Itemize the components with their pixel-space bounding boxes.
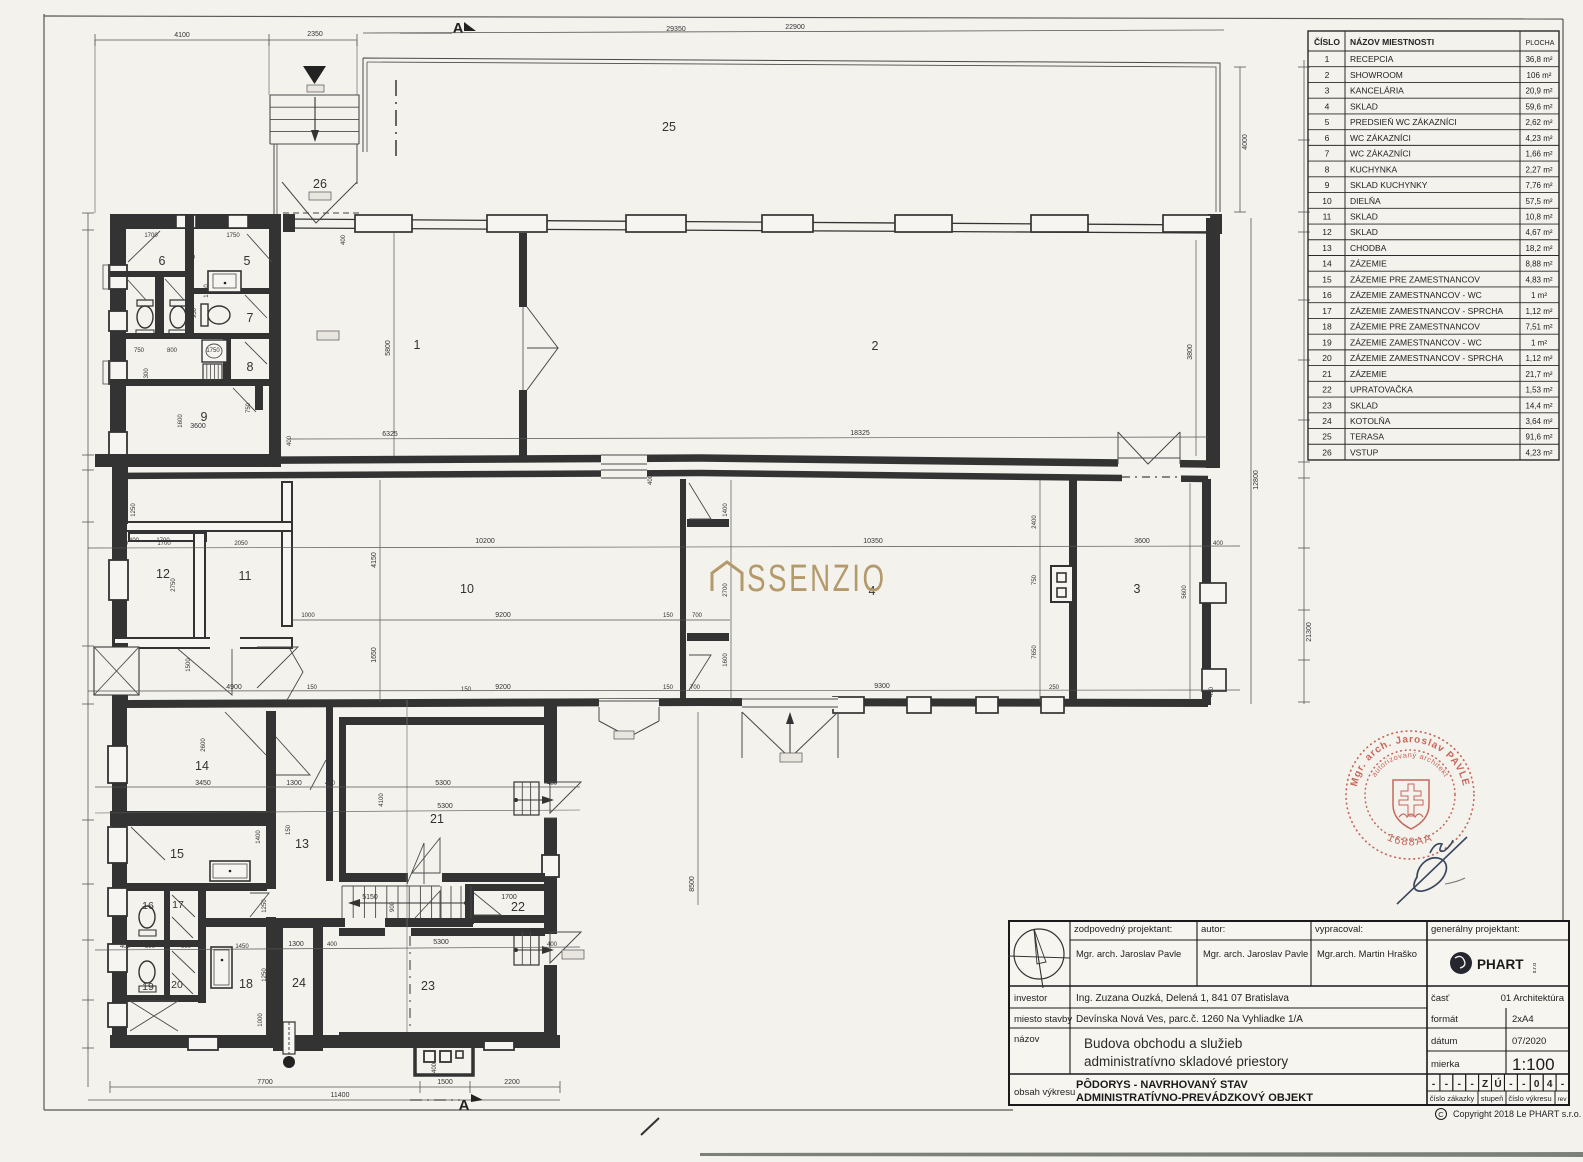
svg-text:22: 22 — [1322, 385, 1332, 395]
svg-text:2,27 m²: 2,27 m² — [1525, 165, 1552, 174]
svg-text:5300: 5300 — [437, 803, 453, 810]
svg-text:2350: 2350 — [307, 31, 323, 38]
svg-text:3: 3 — [1325, 86, 1330, 96]
svg-text:stupeň: stupeň — [1481, 1094, 1504, 1103]
svg-text:150: 150 — [663, 685, 674, 691]
svg-text:150: 150 — [185, 255, 196, 261]
svg-text:SKLAD: SKLAD — [1350, 400, 1378, 410]
svg-text:21,7 m²: 21,7 m² — [1525, 370, 1552, 379]
svg-text:4,67 m²: 4,67 m² — [1525, 228, 1552, 237]
svg-text:800: 800 — [167, 348, 178, 354]
svg-text:16: 16 — [1322, 290, 1332, 300]
svg-text:TERASA: TERASA — [1350, 432, 1384, 442]
svg-text:4100: 4100 — [174, 32, 190, 39]
svg-text:26: 26 — [313, 177, 327, 191]
svg-text:23: 23 — [1322, 400, 1332, 410]
svg-text:Budova obchodu a služieb: Budova obchodu a služieb — [1084, 1036, 1242, 1051]
svg-text:1400: 1400 — [723, 503, 729, 517]
svg-text:1,12 m²: 1,12 m² — [1525, 354, 1552, 363]
svg-text:2600: 2600 — [201, 738, 207, 752]
svg-text:12: 12 — [156, 567, 170, 581]
svg-text:800: 800 — [145, 944, 156, 950]
svg-text:10: 10 — [460, 582, 474, 596]
svg-text:-: - — [1432, 1079, 1435, 1090]
svg-text:Mgr.arch. Martin Hraško: Mgr.arch. Martin Hraško — [1317, 948, 1417, 959]
svg-text:1000: 1000 — [301, 613, 315, 619]
svg-text:400: 400 — [1209, 437, 1215, 448]
svg-text:4,83 m²: 4,83 m² — [1525, 275, 1552, 284]
svg-text:400: 400 — [120, 944, 131, 950]
svg-text:4,23 m²: 4,23 m² — [1525, 448, 1552, 457]
svg-text:25: 25 — [662, 120, 676, 134]
svg-text:1250: 1250 — [262, 899, 268, 913]
svg-text:400: 400 — [432, 1062, 438, 1073]
svg-text:4900: 4900 — [226, 684, 242, 691]
svg-text:91,6 m²: 91,6 m² — [1525, 433, 1552, 442]
svg-text:ZÁZEMIE ZAMESTNANCOV - WC: ZÁZEMIE ZAMESTNANCOV - WC — [1350, 290, 1482, 300]
svg-text:01 Architektúra: 01 Architektúra — [1501, 993, 1565, 1004]
svg-text:Mgr. arch. Jaroslav Pavle: Mgr. arch. Jaroslav Pavle — [1076, 948, 1181, 959]
svg-text:11: 11 — [1323, 212, 1332, 222]
svg-text:8500: 8500 — [689, 876, 696, 892]
svg-text:4,23 m²: 4,23 m² — [1525, 134, 1552, 143]
svg-text:NÁZOV MIESTNOSTI: NÁZOV MIESTNOSTI — [1350, 37, 1434, 47]
svg-text:2: 2 — [872, 339, 879, 353]
svg-text:3450: 3450 — [195, 780, 211, 787]
svg-text:s.r.o: s.r.o — [1532, 963, 1538, 973]
svg-text:4100: 4100 — [379, 793, 385, 807]
svg-text:1:100: 1:100 — [1512, 1055, 1555, 1074]
svg-text:-: - — [1522, 1079, 1525, 1090]
svg-text:15: 15 — [170, 847, 184, 861]
svg-text:WC ZÁKAZNÍCI: WC ZÁKAZNÍCI — [1350, 133, 1411, 143]
svg-text:10200: 10200 — [475, 538, 495, 545]
svg-text:24: 24 — [1322, 416, 1332, 426]
svg-text:VSTUP: VSTUP — [1350, 447, 1379, 457]
svg-text:57,5 m²: 57,5 m² — [1525, 197, 1552, 206]
svg-text:21: 21 — [430, 812, 444, 826]
svg-text:5300: 5300 — [435, 780, 451, 787]
svg-text:CHODBA: CHODBA — [1350, 243, 1387, 253]
svg-text:3800: 3800 — [1187, 344, 1194, 360]
svg-text:8: 8 — [1325, 164, 1330, 174]
svg-text:9200: 9200 — [495, 612, 511, 619]
svg-text:10,8 m²: 10,8 m² — [1525, 213, 1552, 222]
svg-text:11: 11 — [239, 569, 252, 583]
svg-text:150: 150 — [461, 687, 472, 693]
svg-text:7650: 7650 — [1032, 645, 1038, 659]
svg-text:5: 5 — [1325, 117, 1330, 127]
svg-text:18,2 m²: 18,2 m² — [1525, 244, 1552, 253]
svg-text:ČÍSLO: ČÍSLO — [1314, 36, 1340, 47]
svg-text:SSENZIO: SSENZIO — [747, 558, 887, 600]
svg-text:250: 250 — [1049, 685, 1060, 691]
svg-text:14,4 m²: 14,4 m² — [1525, 401, 1552, 410]
svg-text:1,12 m²: 1,12 m² — [1525, 307, 1552, 316]
svg-text:A: A — [459, 1097, 470, 1114]
svg-text:2700: 2700 — [277, 956, 283, 970]
svg-text:5600: 5600 — [1182, 585, 1188, 599]
svg-text:SKLAD KUCHYNKY: SKLAD KUCHYNKY — [1350, 180, 1428, 190]
svg-text:400: 400 — [325, 781, 336, 787]
svg-text:2050: 2050 — [234, 541, 248, 547]
svg-text:26: 26 — [1322, 447, 1332, 457]
svg-text:150: 150 — [286, 824, 292, 835]
svg-text:17: 17 — [172, 899, 184, 911]
svg-text:22900: 22900 — [785, 24, 805, 31]
svg-text:vypracoval:: vypracoval: — [1315, 924, 1363, 935]
svg-text:8,88 m²: 8,88 m² — [1525, 260, 1552, 269]
svg-text:700: 700 — [690, 685, 701, 691]
svg-text:16: 16 — [142, 900, 154, 912]
svg-text:ZÁZEMIE ZAMESTNANCOV - SPRCHA: ZÁZEMIE ZAMESTNANCOV - SPRCHA — [1350, 353, 1503, 363]
svg-text:36,8 m²: 36,8 m² — [1525, 55, 1552, 64]
svg-text:C: C — [1438, 1110, 1444, 1119]
svg-text:1750: 1750 — [226, 233, 240, 239]
svg-text:21: 21 — [1322, 369, 1332, 379]
svg-text:3: 3 — [1134, 582, 1141, 596]
svg-text:1250: 1250 — [262, 968, 268, 982]
svg-text:1400: 1400 — [256, 830, 262, 844]
svg-text:3600: 3600 — [190, 423, 206, 430]
svg-text:administratívno skladové pries: administratívno skladové priestory — [1084, 1054, 1288, 1069]
svg-text:13: 13 — [1322, 243, 1332, 253]
svg-text:ZÁZEMIE: ZÁZEMIE — [1350, 369, 1387, 379]
svg-text:obsah výkresu: obsah výkresu — [1014, 1087, 1075, 1098]
svg-text:1,53 m²: 1,53 m² — [1525, 386, 1552, 395]
svg-text:7,76 m²: 7,76 m² — [1525, 181, 1552, 190]
svg-text:časť: časť — [1431, 993, 1450, 1004]
svg-text:106 m²: 106 m² — [1527, 71, 1552, 80]
svg-text:23: 23 — [421, 979, 435, 993]
svg-text:formát: formát — [1431, 1014, 1458, 1025]
svg-text:PREDSIEŇ WC ZÁKAZNÍCI: PREDSIEŇ WC ZÁKAZNÍCI — [1350, 117, 1457, 127]
svg-text:24: 24 — [292, 976, 306, 990]
svg-text:názov: názov — [1014, 1034, 1040, 1045]
svg-text:29350: 29350 — [666, 26, 686, 33]
svg-text:900: 900 — [181, 944, 192, 950]
svg-text:KOTOLŇA: KOTOLŇA — [1350, 416, 1391, 426]
svg-text:22: 22 — [511, 900, 525, 914]
svg-text:400: 400 — [287, 435, 293, 446]
svg-text:400: 400 — [1209, 686, 1215, 697]
svg-text:investor: investor — [1014, 993, 1047, 1004]
svg-text:dátum: dátum — [1431, 1036, 1457, 1047]
svg-text:750: 750 — [134, 348, 145, 354]
svg-text:číslo výkresu: číslo výkresu — [1508, 1094, 1551, 1103]
svg-text:950: 950 — [192, 307, 198, 318]
svg-text:150: 150 — [663, 613, 674, 619]
svg-text:14: 14 — [195, 759, 209, 773]
svg-text:400: 400 — [129, 538, 140, 544]
svg-text:1: 1 — [414, 338, 421, 352]
svg-text:ZÁZEMIE PRE ZAMESTNANCOV: ZÁZEMIE PRE ZAMESTNANCOV — [1350, 322, 1480, 332]
svg-text:ZÁZEMIE ZAMESTNANCOV - WC: ZÁZEMIE ZAMESTNANCOV - WC — [1350, 337, 1482, 347]
svg-text:1500: 1500 — [204, 284, 210, 298]
svg-text:2400: 2400 — [1032, 515, 1038, 529]
svg-text:7,51 m²: 7,51 m² — [1525, 323, 1552, 332]
svg-text:1600: 1600 — [178, 414, 184, 428]
svg-text:Ú: Ú — [1494, 1077, 1501, 1090]
svg-text:3600: 3600 — [1134, 538, 1150, 545]
svg-text:8: 8 — [247, 360, 254, 374]
svg-text:6: 6 — [159, 254, 166, 268]
svg-text:autor:: autor: — [1201, 924, 1225, 935]
svg-text:5300: 5300 — [433, 939, 449, 946]
svg-text:1250: 1250 — [131, 503, 137, 517]
svg-text:6: 6 — [1325, 133, 1330, 143]
svg-text:4150: 4150 — [371, 552, 378, 568]
svg-text:7: 7 — [1325, 149, 1330, 159]
svg-text:400: 400 — [327, 942, 338, 948]
svg-text:rev: rev — [1557, 1096, 1567, 1103]
svg-text:7: 7 — [247, 311, 254, 325]
svg-text:Mgr. arch. Jaroslav Pavle: Mgr. arch. Jaroslav Pavle — [1203, 948, 1308, 959]
svg-text:750: 750 — [246, 402, 252, 413]
svg-text:Z: Z — [1482, 1079, 1488, 1090]
svg-text:PÔDORYS - NAVRHOVANÝ STAV: PÔDORYS - NAVRHOVANÝ STAV — [1076, 1078, 1248, 1091]
svg-text:1300: 1300 — [144, 368, 150, 382]
svg-text:20,9 m²: 20,9 m² — [1525, 87, 1552, 96]
svg-text:11400: 11400 — [331, 1092, 350, 1099]
svg-text:1000: 1000 — [258, 1013, 264, 1027]
svg-text:400: 400 — [1213, 541, 1224, 547]
svg-text:13: 13 — [295, 837, 309, 851]
svg-text:400: 400 — [648, 474, 654, 485]
svg-text:900: 900 — [390, 901, 396, 912]
svg-text:SKLAD: SKLAD — [1350, 101, 1378, 111]
svg-text:1500: 1500 — [437, 1079, 453, 1086]
svg-text:Copyright 2018 Le PHART s.r.o.: Copyright 2018 Le PHART s.r.o. — [1453, 1109, 1581, 1119]
svg-text:-: - — [1458, 1079, 1461, 1090]
svg-text:miesto stavby: miesto stavby — [1014, 1014, 1072, 1025]
svg-text:Ing. Zuzana Ouzká, Delená 1, 8: Ing. Zuzana Ouzká, Delená 1, 841 07 Brat… — [1076, 993, 1289, 1004]
svg-text:PLOCHA: PLOCHA — [1526, 40, 1555, 47]
svg-text:2,62 m²: 2,62 m² — [1525, 118, 1552, 127]
svg-text:zodpovedný projektant:: zodpovedný projektant: — [1074, 924, 1172, 935]
svg-text:1 m²: 1 m² — [1531, 291, 1547, 300]
svg-text:700: 700 — [692, 613, 703, 619]
svg-text:1450: 1450 — [235, 944, 249, 950]
svg-text:číslo zákazky: číslo zákazky — [1430, 1094, 1475, 1103]
svg-text:1650: 1650 — [371, 647, 378, 663]
svg-text:DIELŇA: DIELŇA — [1350, 196, 1381, 206]
svg-text:3,64 m²: 3,64 m² — [1525, 417, 1552, 426]
svg-text:KANCELÁRIA: KANCELÁRIA — [1350, 86, 1404, 96]
svg-text:400: 400 — [118, 541, 129, 547]
svg-text:ZÁZEMIE PRE ZAMESTNANCOV: ZÁZEMIE PRE ZAMESTNANCOV — [1350, 274, 1480, 284]
svg-text:4000: 4000 — [1242, 134, 1249, 150]
svg-text:1500: 1500 — [186, 658, 192, 672]
svg-text:1: 1 — [1325, 54, 1330, 64]
svg-text:1700: 1700 — [156, 538, 170, 544]
svg-text:18325: 18325 — [850, 430, 870, 437]
svg-text:9200: 9200 — [495, 684, 511, 691]
svg-text:4: 4 — [1325, 101, 1330, 111]
svg-text:9: 9 — [201, 410, 208, 424]
svg-text:SKLAD: SKLAD — [1350, 227, 1378, 237]
svg-text:ADMINISTRATÍVNO-PREVÁDZKOVÝ OB: ADMINISTRATÍVNO-PREVÁDZKOVÝ OBJEKT — [1076, 1091, 1313, 1104]
svg-text:1,66 m²: 1,66 m² — [1525, 150, 1552, 159]
svg-text:1300: 1300 — [288, 941, 304, 948]
svg-text:-: - — [1509, 1079, 1512, 1090]
svg-text:12: 12 — [1322, 227, 1332, 237]
svg-text:-: - — [1561, 1079, 1564, 1090]
svg-text:150: 150 — [307, 685, 318, 691]
svg-text:20: 20 — [171, 979, 183, 991]
svg-text:21300: 21300 — [1306, 622, 1313, 642]
svg-text:A: A — [453, 20, 464, 37]
svg-text:9: 9 — [1325, 180, 1330, 190]
svg-text:0: 0 — [1534, 1079, 1540, 1090]
svg-text:17: 17 — [1322, 306, 1332, 316]
svg-text:2700: 2700 — [723, 583, 729, 597]
svg-text:1700: 1700 — [144, 233, 158, 239]
svg-text:Devínska Nová Ves, parc.č. 126: Devínska Nová Ves, parc.č. 1260 Na Vyhli… — [1076, 1014, 1303, 1025]
svg-text:2xA4: 2xA4 — [1512, 1014, 1534, 1025]
svg-text:400: 400 — [341, 234, 347, 245]
svg-text:18: 18 — [239, 977, 253, 991]
svg-text:mierka: mierka — [1431, 1059, 1460, 1070]
svg-text:ZÁZEMIE ZAMESTNANCOV - SPRCHA: ZÁZEMIE ZAMESTNANCOV - SPRCHA — [1350, 306, 1503, 316]
svg-text:5800: 5800 — [385, 340, 392, 356]
svg-text:2750: 2750 — [171, 578, 177, 592]
svg-text:400: 400 — [547, 781, 558, 787]
svg-text:generálny projektant:: generálny projektant: — [1431, 924, 1520, 935]
svg-text:PHART: PHART — [1477, 957, 1524, 972]
svg-text:400: 400 — [547, 942, 558, 948]
svg-text:2200: 2200 — [504, 1079, 520, 1086]
svg-text:9300: 9300 — [874, 683, 890, 690]
svg-text:1 m²: 1 m² — [1531, 338, 1547, 347]
svg-text:15: 15 — [1322, 274, 1332, 284]
svg-text:5: 5 — [244, 254, 251, 268]
svg-text:SKLAD: SKLAD — [1350, 212, 1378, 222]
svg-text:18: 18 — [1322, 322, 1332, 332]
svg-text:KUCHYNKA: KUCHYNKA — [1350, 164, 1398, 174]
svg-text:ZÁZEMIE: ZÁZEMIE — [1350, 259, 1387, 269]
svg-text:1700: 1700 — [501, 894, 517, 901]
svg-text:UPRATOVAČKA: UPRATOVAČKA — [1350, 385, 1413, 395]
svg-text:19: 19 — [1322, 337, 1332, 347]
svg-text:1300: 1300 — [286, 780, 302, 787]
svg-text:1750: 1750 — [206, 348, 220, 354]
svg-text:SHOWROOM: SHOWROOM — [1350, 70, 1403, 80]
svg-text:14: 14 — [1322, 259, 1332, 269]
svg-text:1600: 1600 — [723, 653, 729, 667]
svg-text:-: - — [1471, 1079, 1474, 1090]
svg-text:20: 20 — [1322, 353, 1332, 363]
svg-text:400: 400 — [115, 229, 126, 235]
svg-text:RECEPCIA: RECEPCIA — [1350, 54, 1394, 64]
svg-text:WC ZÁKAZNÍCI: WC ZÁKAZNÍCI — [1350, 149, 1411, 159]
svg-text:2: 2 — [1325, 70, 1330, 80]
svg-text:12800: 12800 — [1253, 470, 1260, 490]
svg-text:5150: 5150 — [362, 894, 378, 901]
svg-text:19: 19 — [142, 981, 154, 993]
svg-text:6325: 6325 — [382, 431, 398, 438]
svg-text:7700: 7700 — [257, 1079, 273, 1086]
svg-text:10: 10 — [1322, 196, 1332, 206]
svg-text:750: 750 — [1032, 574, 1038, 585]
svg-text:25: 25 — [1322, 432, 1332, 442]
svg-text:4: 4 — [1547, 1079, 1553, 1090]
svg-text:-: - — [1445, 1079, 1448, 1090]
svg-text:07/2020: 07/2020 — [1512, 1036, 1546, 1047]
svg-text:10350: 10350 — [863, 538, 883, 545]
svg-text:59,6 m²: 59,6 m² — [1525, 102, 1552, 111]
